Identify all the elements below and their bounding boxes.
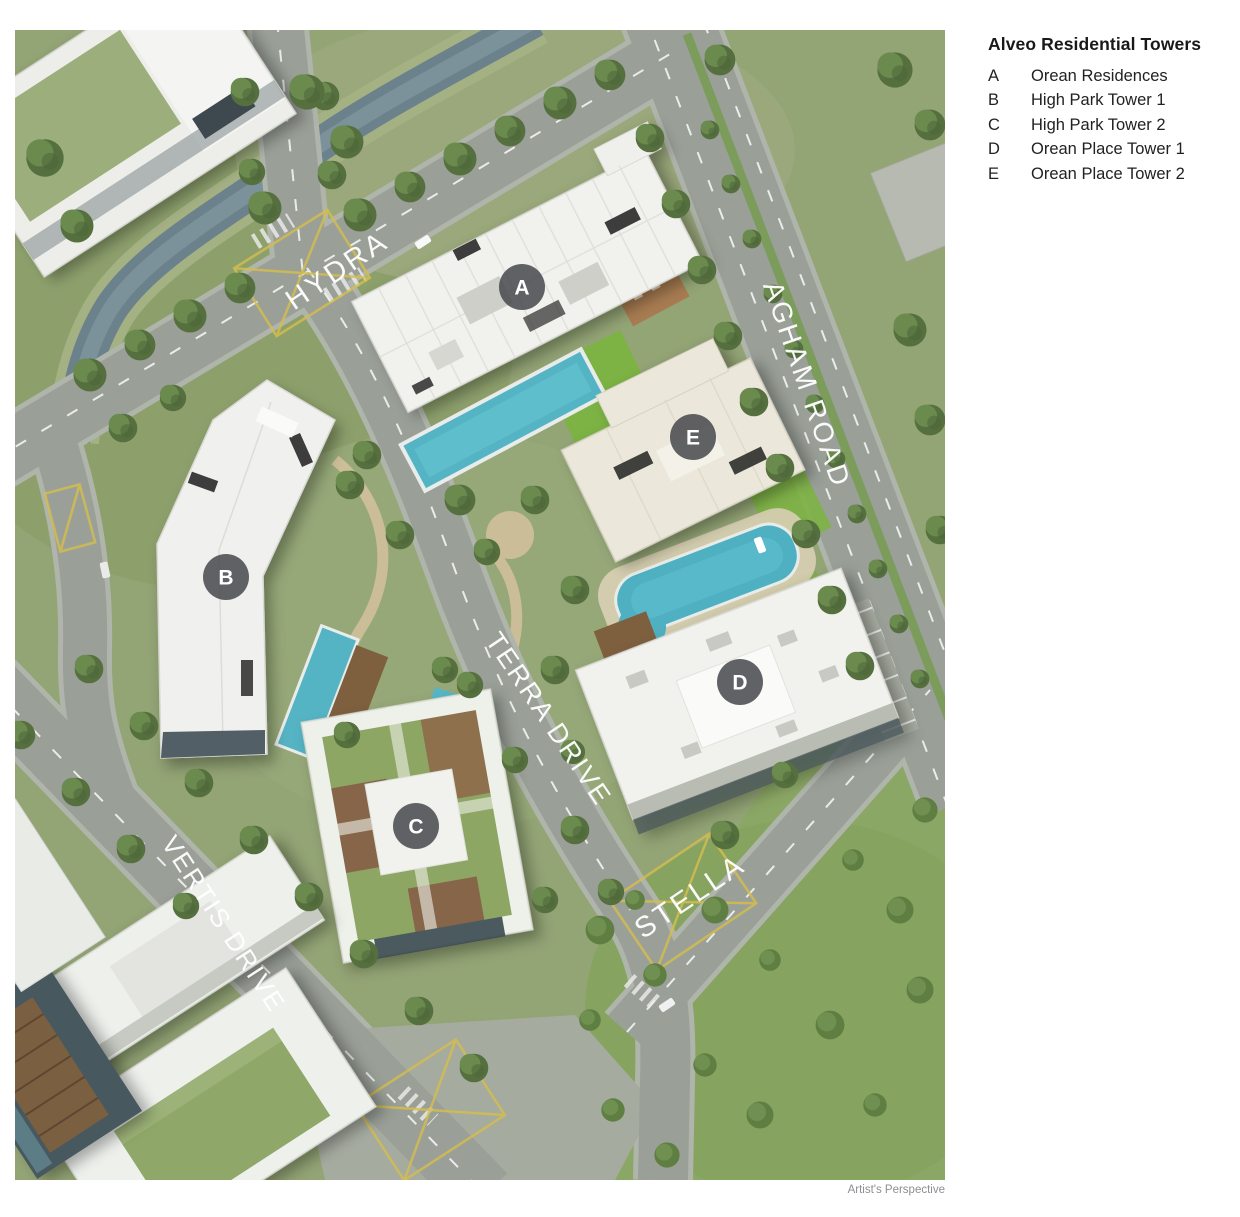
legend-item-letter: D [988, 137, 1031, 161]
legend-item-name: Orean Residences [1031, 64, 1223, 88]
site-plan-image: HYDRA AGHAM ROAD TERRA DRIVE VERTIS DRIV… [15, 30, 945, 1180]
map-marker-d: D [717, 659, 763, 705]
legend-item: B High Park Tower 1 [988, 88, 1223, 112]
marker-letter: B [218, 567, 233, 590]
map-marker-a: A [499, 264, 545, 310]
legend-item-name: High Park Tower 2 [1031, 113, 1223, 137]
legend-item-letter: A [988, 64, 1031, 88]
site-plan-svg: HYDRA AGHAM ROAD TERRA DRIVE VERTIS DRIV… [15, 30, 945, 1180]
legend-item-name: Orean Place Tower 1 [1031, 137, 1223, 161]
map-marker-b: B [203, 554, 249, 600]
legend-item: E Orean Place Tower 2 [988, 162, 1223, 186]
artists-perspective-caption: Artist's Perspective [15, 1184, 945, 1196]
legend-item: C High Park Tower 2 [988, 113, 1223, 137]
marker-letter: D [732, 672, 747, 695]
legend-item-letter: E [988, 162, 1031, 186]
map-marker-c: C [393, 803, 439, 849]
legend-item-letter: C [988, 113, 1031, 137]
marker-letter: C [408, 816, 423, 839]
legend: Alveo Residential Towers A Orean Residen… [988, 34, 1223, 186]
marker-letter: A [514, 277, 529, 300]
map-marker-e: E [670, 414, 716, 460]
marker-letter: E [686, 427, 700, 450]
legend-item-name: Orean Place Tower 2 [1031, 162, 1223, 186]
legend-item-letter: B [988, 88, 1031, 112]
legend-rows: A Orean Residences B High Park Tower 1 C… [988, 64, 1223, 186]
legend-title: Alveo Residential Towers [988, 34, 1223, 55]
legend-item: A Orean Residences [988, 64, 1223, 88]
legend-item: D Orean Place Tower 1 [988, 137, 1223, 161]
legend-item-name: High Park Tower 1 [1031, 88, 1223, 112]
